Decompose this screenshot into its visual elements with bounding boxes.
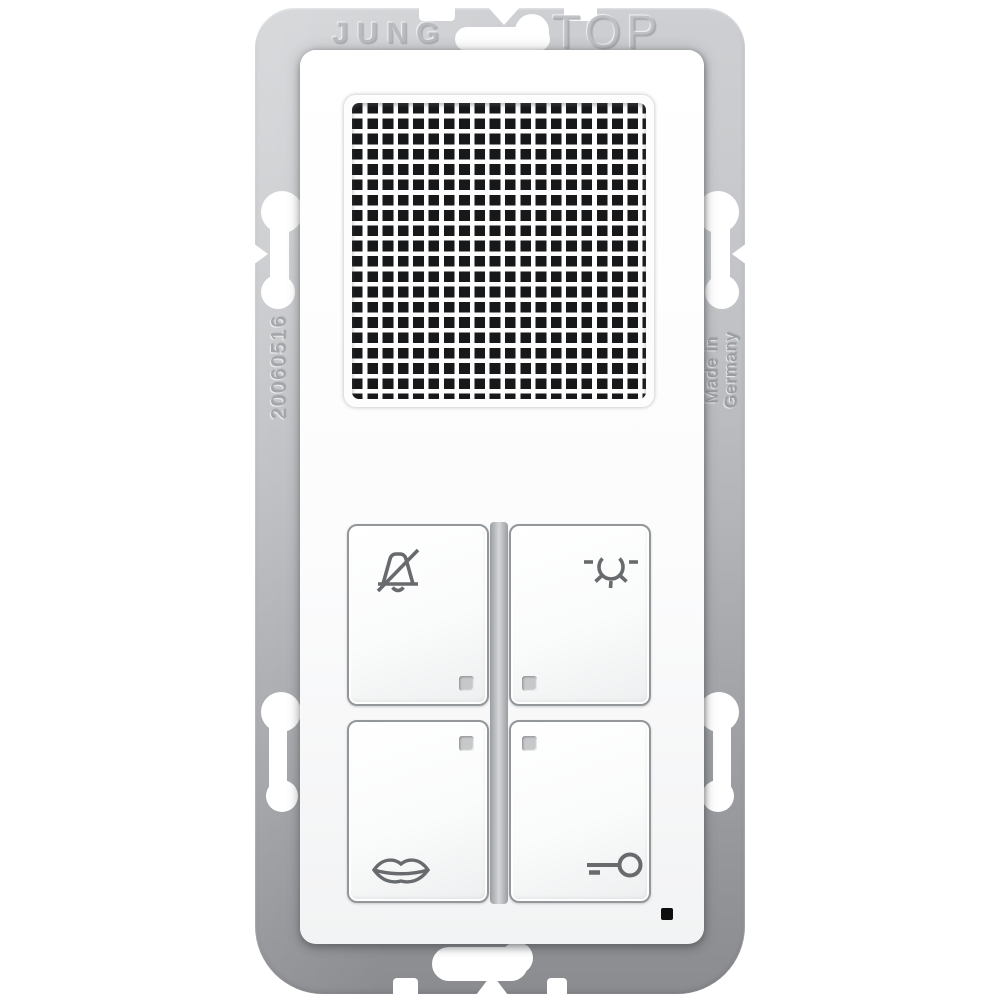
- bottom-keyhole-slot-bulge: [501, 942, 533, 974]
- origin-marking-line2: Germany: [721, 290, 740, 450]
- top-keyhole-slot-bulge: [515, 14, 549, 48]
- claw-slot-lower-right-end: [702, 780, 734, 812]
- serial-marking: 20060516: [268, 277, 292, 457]
- plate-notch-bottom-right: [547, 978, 567, 996]
- plate-notch-bottom-left: [393, 978, 418, 996]
- origin-marking-line1: Made in: [702, 290, 721, 450]
- led-indicator-door-open: [522, 736, 537, 751]
- product-photo-intercom: JUNG TOP 20060516 Made in Germany: [0, 0, 1000, 1000]
- microphone-hole: [661, 908, 673, 920]
- plate-notch-top-center: [487, 6, 521, 25]
- claw-slot-lower-left-end: [266, 780, 298, 812]
- plate-notch-left-edge: [253, 243, 268, 265]
- speaker-grille: [344, 95, 654, 407]
- key-icon: [580, 846, 648, 884]
- led-indicator-speech: [459, 736, 474, 751]
- bell-muted-icon: [366, 538, 430, 602]
- light-icon: [576, 540, 646, 600]
- brand-marking: JUNG: [332, 17, 447, 51]
- led-indicator-light: [522, 676, 537, 691]
- speaker-grille-holes: [352, 103, 646, 399]
- origin-marking: Made in Germany: [702, 290, 742, 450]
- lips-icon: [370, 848, 432, 892]
- button-center-divider: [490, 522, 508, 904]
- plate-notch-right-edge: [732, 243, 747, 265]
- led-indicator-bell-mute: [459, 676, 474, 691]
